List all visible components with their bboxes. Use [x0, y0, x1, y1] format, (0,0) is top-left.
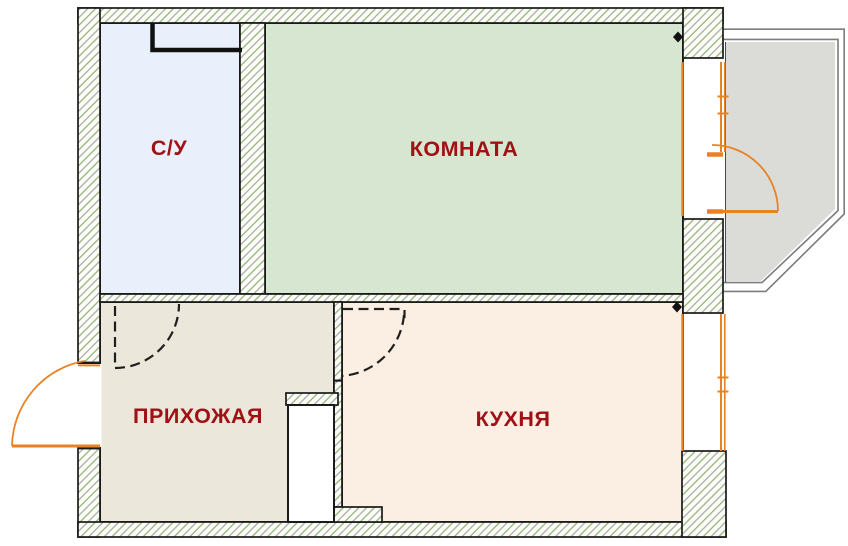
wall-right-top-block [683, 8, 723, 58]
wall-bottom [78, 522, 726, 537]
hallway-closet [288, 405, 334, 522]
wall-right-mid-block [683, 219, 723, 313]
wall-right-bottom-block [682, 451, 726, 537]
wall-kitchen-corner-step [333, 507, 382, 522]
entrance-gap [77, 364, 102, 447]
entrance-opening [77, 362, 102, 450]
balcony-floor [727, 42, 835, 281]
room-label-hallway: ПРИХОЖАЯ [133, 404, 263, 428]
wall-top [78, 8, 723, 23]
wall-left [78, 8, 100, 537]
wall-bathroom-living [240, 23, 265, 294]
floor-plan: С/У КОМНАТА ПРИХОЖАЯ КУХНЯ [0, 0, 848, 546]
balcony [723, 29, 844, 291]
room-label-kitchen: КУХНЯ [476, 407, 551, 431]
entrance-door-arc [12, 361, 85, 446]
wall-interior-horizontal [100, 294, 683, 302]
room-label-bathroom: С/У [151, 136, 188, 160]
kitchen-door-jamb [333, 380, 343, 382]
room-label-living: КОМНАТА [410, 137, 519, 161]
floor-plan-canvas: С/У КОМНАТА ПРИХОЖАЯ КУХНЯ [0, 0, 848, 546]
closet-cap-wall [286, 393, 338, 405]
